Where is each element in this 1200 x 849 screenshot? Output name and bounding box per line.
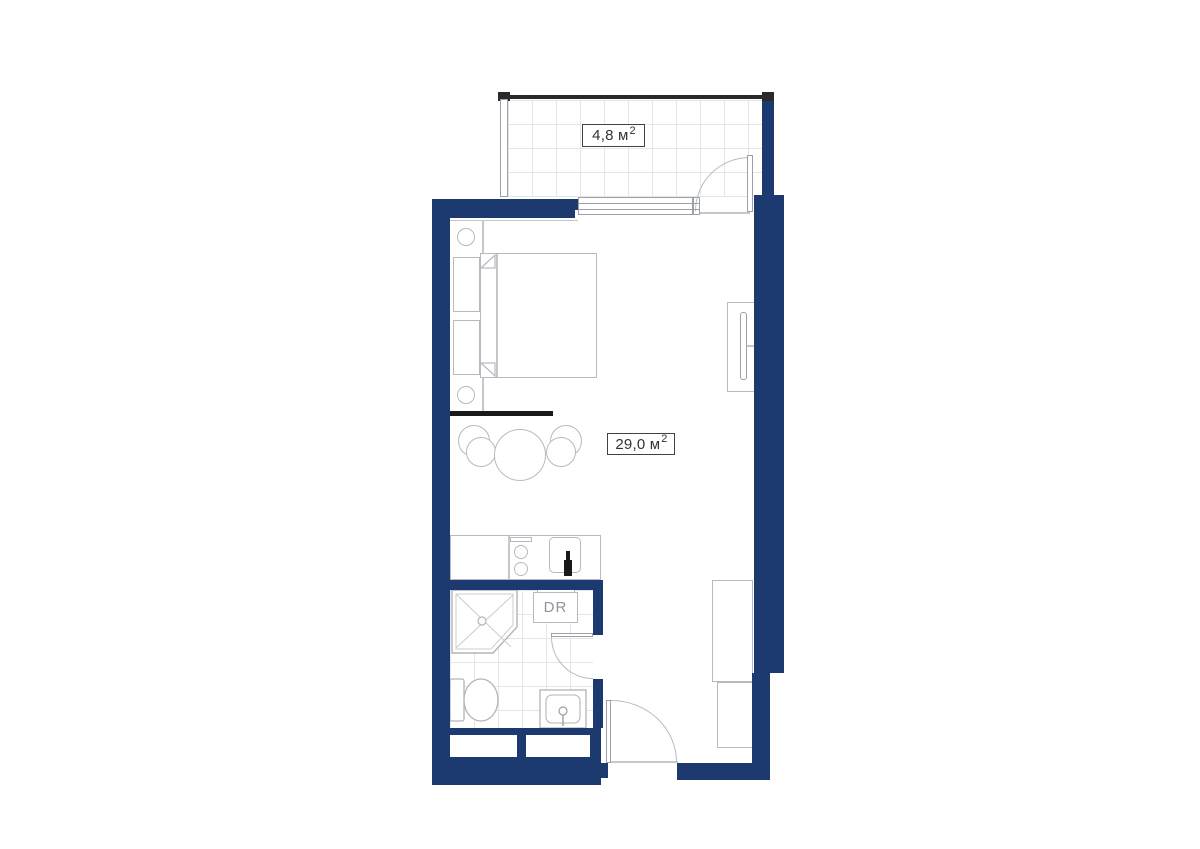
floor-plan: DR	[0, 0, 1200, 849]
bed-pillow	[481, 255, 495, 268]
bed-pillow	[481, 363, 495, 376]
wall-left	[432, 199, 450, 785]
ventilation-shaft	[526, 735, 590, 757]
bathroom-door-leaf	[551, 633, 593, 637]
balcony-glazing	[500, 95, 774, 99]
balcony-side-wall	[500, 99, 508, 197]
bathroom-wall-right-lower	[593, 679, 603, 728]
window-frame-line	[579, 209, 699, 210]
window-sill	[578, 197, 700, 215]
balcony-area-value: 4,8 м	[592, 127, 628, 144]
toilet-tank	[450, 679, 464, 721]
shower-drain	[478, 617, 486, 625]
wall-balcony-right	[762, 95, 774, 199]
wall-right-upper	[754, 195, 784, 673]
balcony-glazing-post	[762, 92, 774, 101]
wall-right-lower	[752, 673, 770, 780]
window-frame-line	[579, 203, 699, 204]
entrance-door-leaf	[606, 700, 611, 763]
balcony-area-sup: 2	[630, 125, 636, 137]
main-room-area-label: 29,0 м2	[607, 433, 675, 455]
wall-top	[432, 199, 575, 218]
main-room-area-value: 29,0 м	[615, 436, 660, 453]
window-frame-divider	[692, 198, 694, 214]
bathroom-wall-right-upper	[593, 590, 603, 635]
washbasin-faucet	[559, 707, 567, 715]
bathroom-wall-top	[450, 580, 603, 590]
balcony-area-label: 4,8 м2	[582, 124, 645, 147]
balcony-door-threshold	[700, 212, 750, 214]
ventilation-shaft	[450, 735, 517, 757]
wall-bottom-left-stub	[601, 763, 608, 778]
main-room-area-sup: 2	[661, 433, 667, 445]
toilet	[464, 679, 498, 721]
balcony-door-leaf	[747, 155, 753, 212]
